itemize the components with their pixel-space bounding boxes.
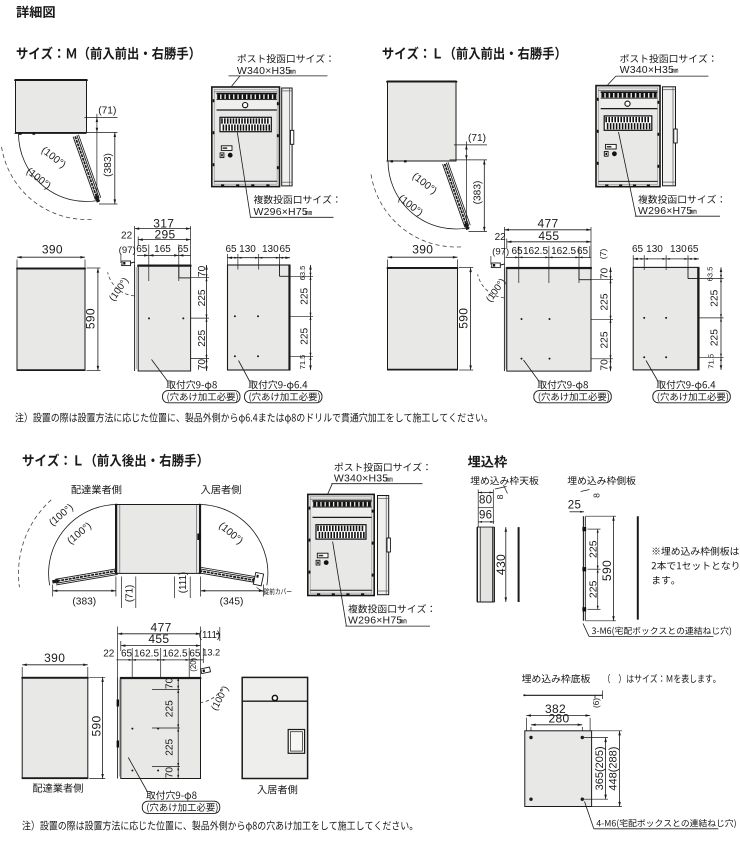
svg-text:130: 130 [670,244,687,255]
svg-text:590: 590 [600,560,614,581]
svg-text:162.5: 162.5 [551,246,576,257]
svg-text:(97): (97) [119,245,136,256]
svg-text:590: 590 [90,715,104,736]
svg-text:130: 130 [239,244,256,255]
svg-text:(71): (71) [124,585,135,602]
svg-text:W340×H35: W340×H35 [237,65,291,77]
svg-text:225: 225 [709,289,720,306]
svg-text:22: 22 [121,230,133,241]
svg-text:13.2: 13.2 [202,647,220,657]
svg-text:(100°): (100°) [107,276,131,304]
svg-text:(71): (71) [98,106,116,117]
svg-text:65: 65 [687,244,699,255]
svg-text:(383): (383) [473,181,484,205]
svg-text:(111): (111) [178,572,189,593]
svg-text:80: 80 [479,494,492,506]
svg-text:(100°): (100°) [216,521,244,547]
svg-text:162.5: 162.5 [523,246,548,257]
svg-text:225: 225 [299,287,310,304]
svg-text:(97): (97) [492,246,509,257]
svg-text:W296×H75: W296×H75 [638,205,692,217]
svg-text:130: 130 [646,244,663,255]
svg-text:(383): (383) [72,596,96,607]
svg-text:(100°): (100°) [410,171,439,197]
svg-text:225: 225 [587,580,599,598]
svg-text:65: 65 [511,246,523,257]
svg-text:65: 65 [177,244,189,255]
svg-text:65: 65 [632,244,644,255]
svg-text:448(288): 448(288) [607,747,619,791]
svg-text:225: 225 [599,293,610,310]
svg-text:225: 225 [709,329,720,346]
svg-text:(71): (71) [468,133,486,144]
svg-text:(345): (345) [220,596,244,607]
svg-text:W340×H35: W340×H35 [334,473,388,485]
svg-text:8: 8 [495,494,505,499]
svg-text:(100°): (100°) [396,193,425,219]
svg-text:(111): (111) [199,630,220,641]
svg-text:(383): (383) [103,153,114,177]
svg-text:(100°): (100°) [47,502,75,528]
svg-text:W296×H75: W296×H75 [348,614,402,626]
svg-text:65: 65 [225,244,237,255]
svg-text:65: 65 [189,648,201,659]
svg-text:(100°): (100°) [24,166,53,192]
svg-text:225: 225 [164,700,175,717]
svg-text:W340×H35: W340×H35 [620,64,674,76]
svg-text:25: 25 [568,500,581,512]
svg-text:71.5: 71.5 [298,355,307,370]
svg-text:70: 70 [164,767,175,779]
svg-text:225: 225 [164,738,175,755]
svg-text:280: 280 [548,711,569,725]
svg-text:165: 165 [154,244,171,255]
svg-text:65: 65 [136,244,148,255]
svg-text:130: 130 [262,244,279,255]
svg-text:(20): (20) [189,657,198,671]
svg-text:22: 22 [103,648,115,659]
svg-text:295: 295 [154,227,175,241]
svg-text:390: 390 [412,243,433,257]
svg-text:(100°): (100°) [66,521,94,547]
svg-text:225: 225 [599,331,610,348]
svg-text:65: 65 [279,244,291,255]
svg-text:390: 390 [44,651,65,665]
svg-text:390: 390 [42,243,63,257]
svg-text:63.5: 63.5 [706,267,715,282]
svg-text:70: 70 [164,677,175,689]
svg-text:96: 96 [479,510,492,522]
svg-text:70: 70 [599,359,610,371]
svg-text:8: 8 [591,493,601,498]
svg-text:(100°): (100°) [39,145,68,171]
svg-text:430: 430 [494,554,508,575]
svg-text:162.5: 162.5 [134,648,159,659]
svg-text:455: 455 [538,229,559,243]
svg-text:225: 225 [587,540,599,558]
svg-text:(6): (6) [592,698,601,708]
svg-text:W296×H75: W296×H75 [254,206,308,218]
svg-text:(7): (7) [598,249,608,260]
svg-text:63.5: 63.5 [298,266,307,281]
svg-text:590: 590 [457,308,471,329]
svg-text:225: 225 [299,327,310,344]
svg-text:162.5: 162.5 [162,648,187,659]
svg-text:365(205): 365(205) [594,746,606,790]
svg-text:71.5: 71.5 [707,354,716,369]
svg-text:590: 590 [84,308,98,329]
svg-text:65: 65 [121,648,133,659]
svg-text:70: 70 [599,268,610,280]
svg-text:455: 455 [148,632,169,646]
